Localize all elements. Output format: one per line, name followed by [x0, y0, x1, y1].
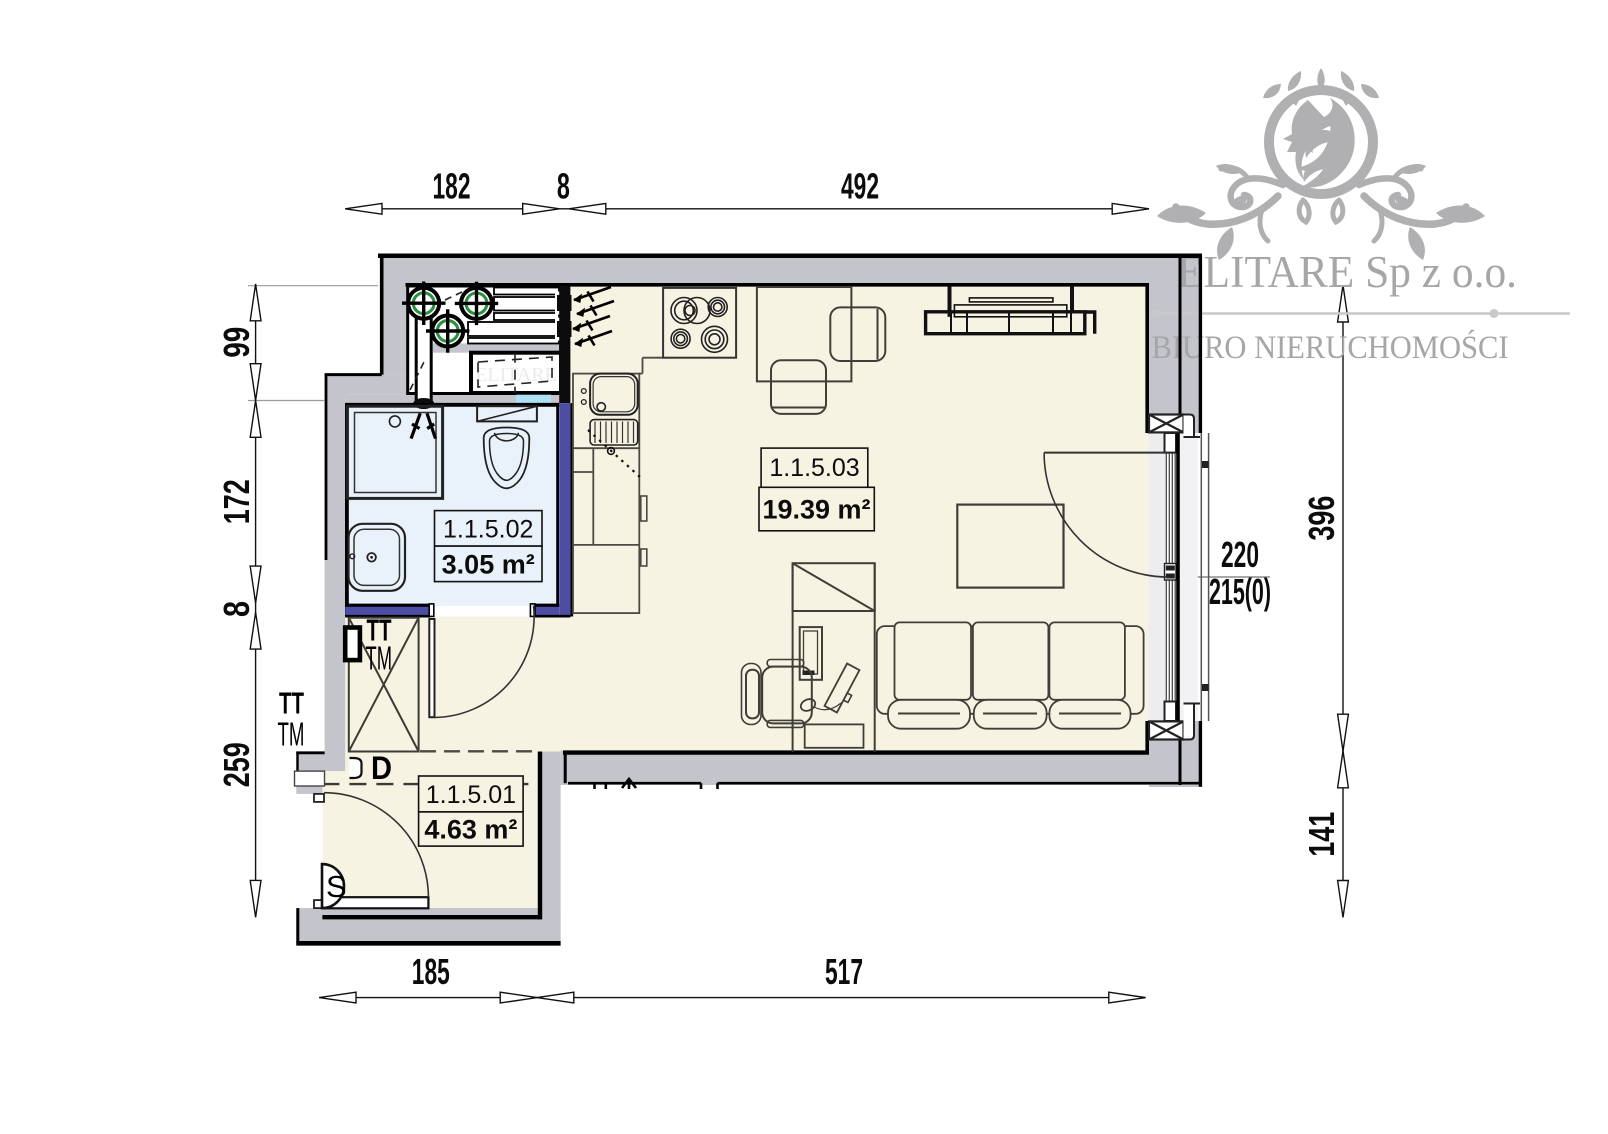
svg-text:172: 172 — [216, 479, 257, 524]
svg-text:D: D — [371, 750, 392, 786]
svg-text:TM: TM — [366, 640, 393, 677]
svg-text:8: 8 — [557, 166, 570, 207]
svg-text:S: S — [326, 869, 347, 904]
svg-text:1.1.5.03: 1.1.5.03 — [769, 454, 859, 482]
svg-text:182: 182 — [433, 166, 471, 207]
svg-text:3.05 m²: 3.05 m² — [442, 550, 535, 580]
svg-text:215(0): 215(0) — [1209, 571, 1271, 612]
svg-text:517: 517 — [825, 951, 863, 992]
svg-text:1.1.5.02: 1.1.5.02 — [443, 516, 533, 544]
svg-text:BIURO NIERUCHOMOŚCI: BIURO NIERUCHOMOŚCI — [1152, 328, 1509, 366]
svg-text:220: 220 — [1221, 534, 1259, 575]
svg-text:8: 8 — [216, 601, 257, 617]
svg-text:1.1.5.01: 1.1.5.01 — [426, 781, 516, 809]
svg-text:99: 99 — [216, 327, 257, 358]
svg-text:4.63 m²: 4.63 m² — [424, 815, 517, 845]
svg-text:19.39 m²: 19.39 m² — [762, 495, 870, 525]
svg-text:396: 396 — [1301, 496, 1342, 541]
svg-text:259: 259 — [216, 742, 257, 787]
svg-text:185: 185 — [412, 951, 450, 992]
svg-text:ELITARE Sp z o.o.: ELITARE Sp z o.o. — [1177, 247, 1517, 297]
svg-text:141: 141 — [1301, 812, 1342, 857]
svg-text:ELITARE: ELITARE — [475, 364, 557, 386]
svg-text:492: 492 — [841, 166, 879, 207]
svg-text:TM: TM — [278, 716, 305, 753]
